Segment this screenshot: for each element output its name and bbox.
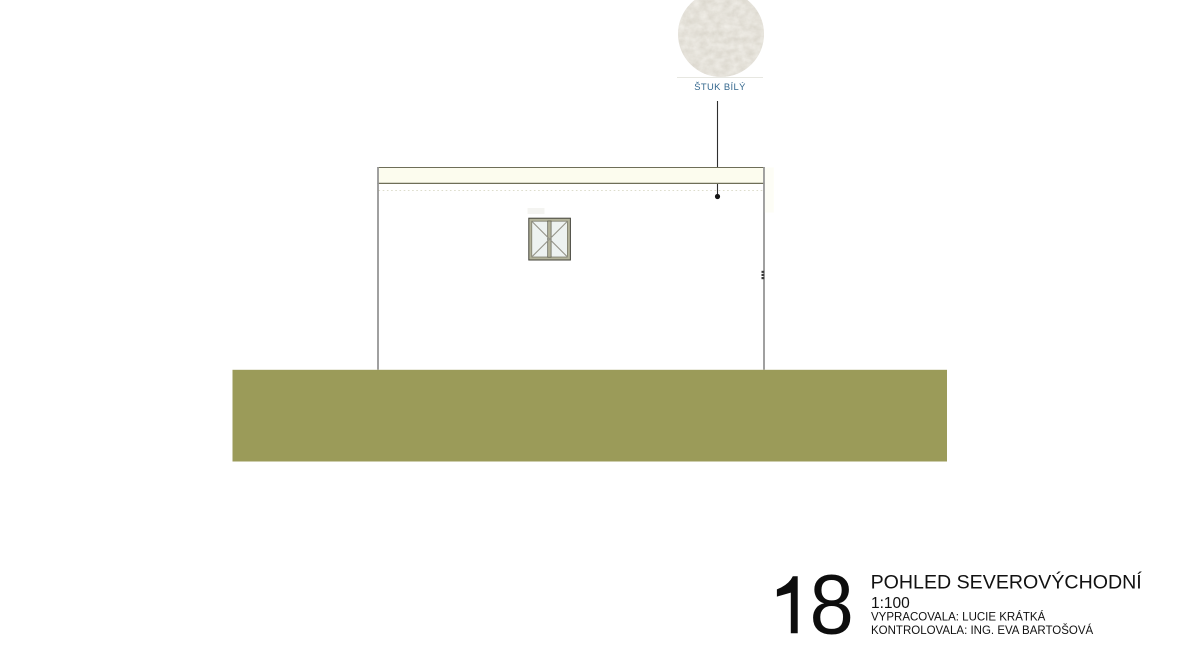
- svg-text:KONTROLOVALA: ING. EVA BARTOŠO: KONTROLOVALA: ING. EVA BARTOŠOVÁ: [871, 624, 1094, 637]
- svg-text:8: 8: [810, 559, 854, 653]
- svg-text:VYPRACOVALA: LUCIE KRÁTKÁ: VYPRACOVALA: LUCIE KRÁTKÁ: [871, 611, 1046, 624]
- svg-text:1:100: 1:100: [871, 595, 910, 612]
- svg-text:POHLED SEVEROVÝCHODNÍ: POHLED SEVEROVÝCHODNÍ: [871, 571, 1143, 594]
- svg-text:ŠTUK BÍLÝ: ŠTUK BÍLÝ: [694, 81, 746, 92]
